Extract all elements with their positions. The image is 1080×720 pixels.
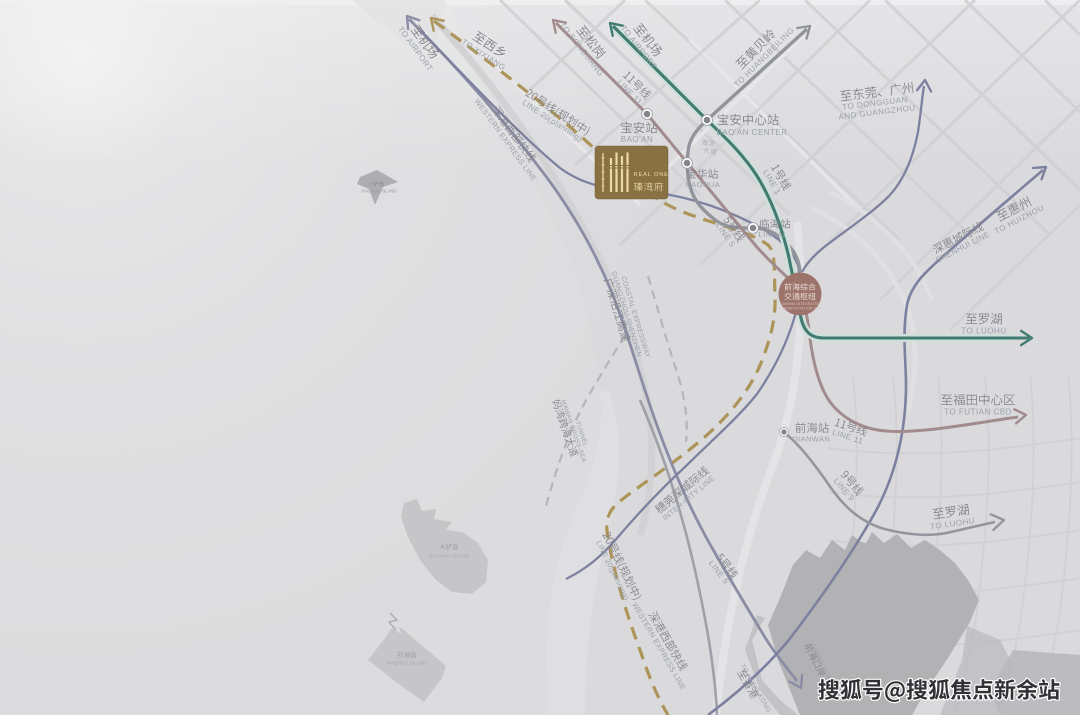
svg-text:QIANWAN: QIANWAN [792, 435, 830, 444]
svg-text:BAOHUA: BAOHUA [686, 180, 721, 189]
svg-text:LINHAI: LINHAI [758, 230, 785, 239]
svg-text:TRANSPORTATION HUB: TRANSPORTATION HUB [779, 307, 822, 311]
svg-text:MAZHOU ISLAND: MAZHOU ISLAND [387, 661, 427, 667]
svg-text:BAO'AN: BAO'AN [621, 135, 654, 144]
svg-text:XIACHAN ISLAND: XIACHAN ISLAND [362, 189, 397, 194]
svg-text:TO LUOHU: TO LUOHU [961, 326, 1006, 335]
svg-text:QIANHAI INTEGRATED: QIANHAI INTEGRATED [780, 302, 820, 306]
svg-text:TO FUTIAN CBD: TO FUTIAN CBD [944, 407, 1012, 416]
svg-text:BAO'AN CENTER: BAO'AN CENTER [716, 128, 787, 137]
svg-text:REAL ONE: REAL ONE [634, 172, 669, 178]
svg-text:DA CHAN ISLAND: DA CHAN ISLAND [429, 554, 470, 560]
